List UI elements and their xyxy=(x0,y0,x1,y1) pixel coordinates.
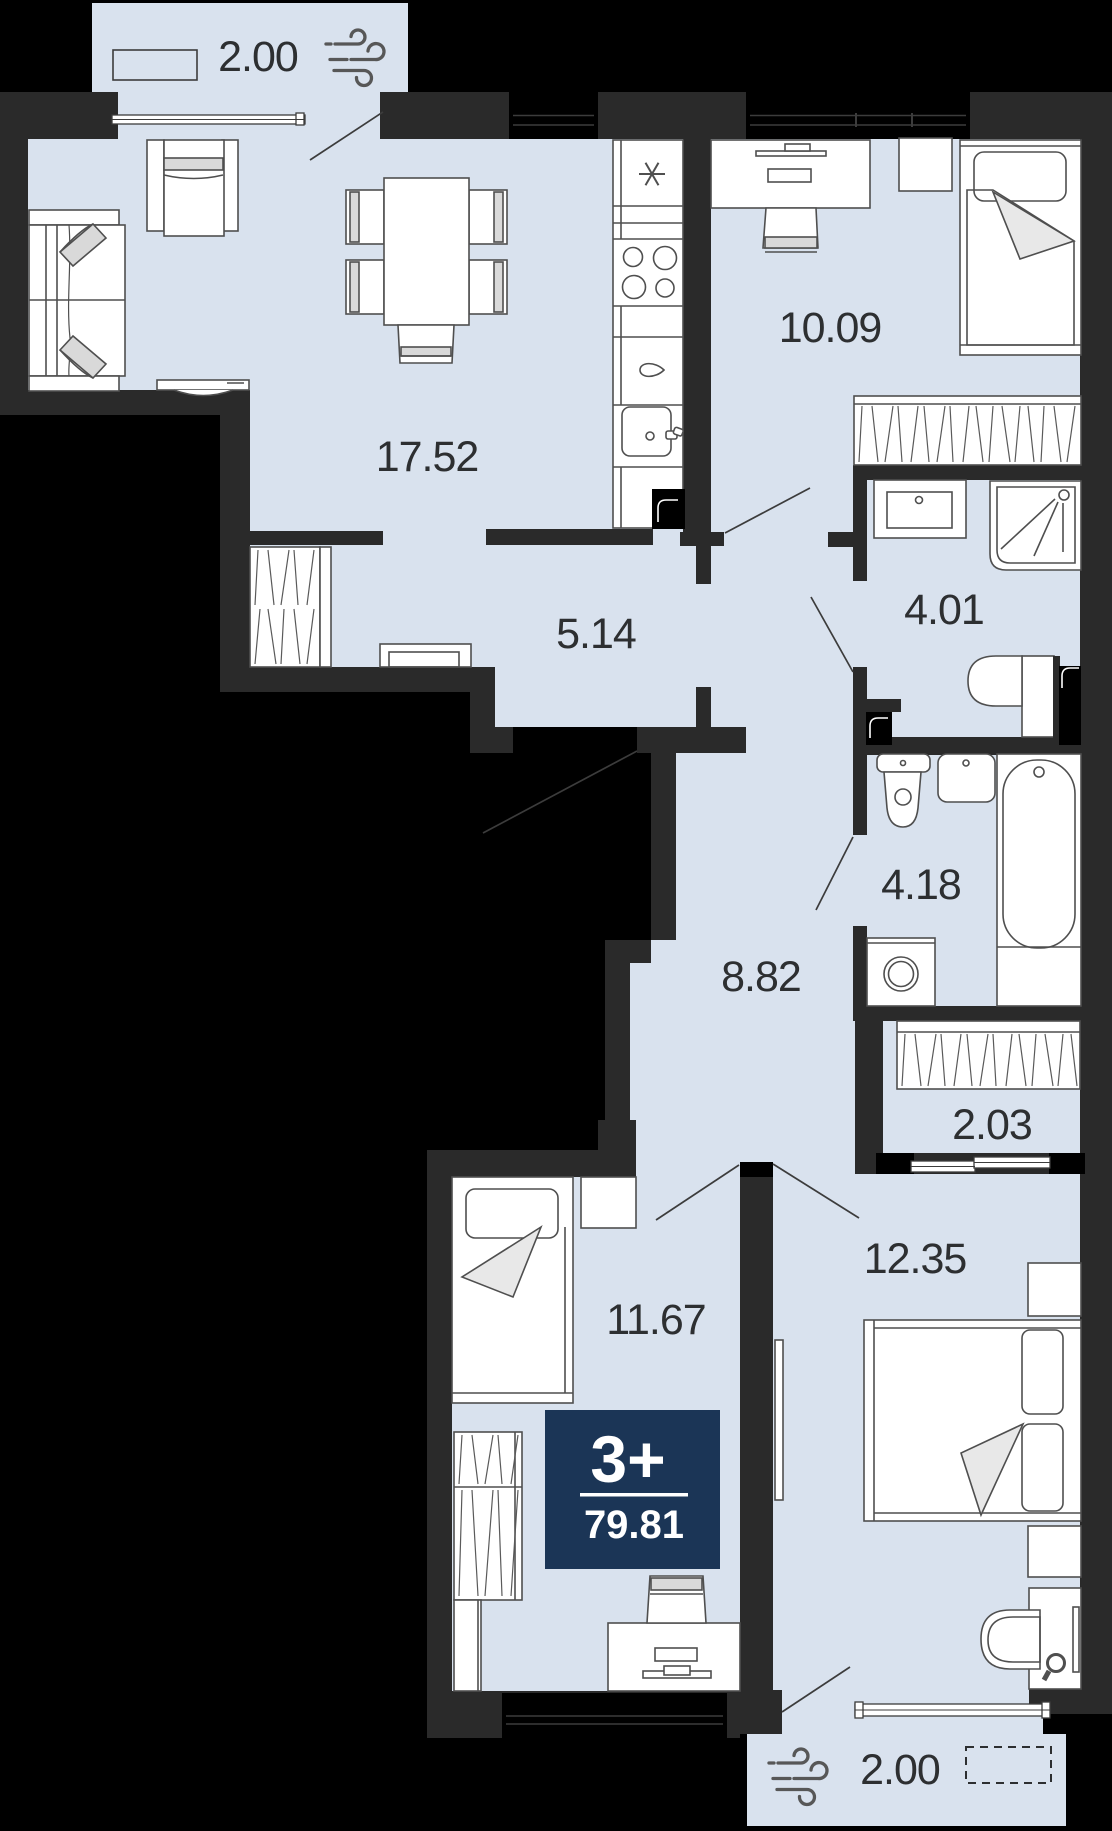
svg-text:4.01: 4.01 xyxy=(904,586,984,634)
svg-text:8.82: 8.82 xyxy=(721,953,801,1001)
svg-text:17.52: 17.52 xyxy=(376,433,479,481)
svg-text:3+: 3+ xyxy=(590,1422,665,1496)
svg-text:5.14: 5.14 xyxy=(556,610,636,658)
svg-text:79.81: 79.81 xyxy=(584,1503,684,1547)
svg-text:2.00: 2.00 xyxy=(860,1746,940,1794)
svg-text:10.09: 10.09 xyxy=(779,304,882,352)
svg-text:12.35: 12.35 xyxy=(864,1235,967,1283)
svg-text:2.00: 2.00 xyxy=(218,33,298,81)
svg-text:11.67: 11.67 xyxy=(606,1296,705,1344)
svg-text:4.18: 4.18 xyxy=(881,861,961,909)
svg-text:2.03: 2.03 xyxy=(952,1101,1032,1149)
